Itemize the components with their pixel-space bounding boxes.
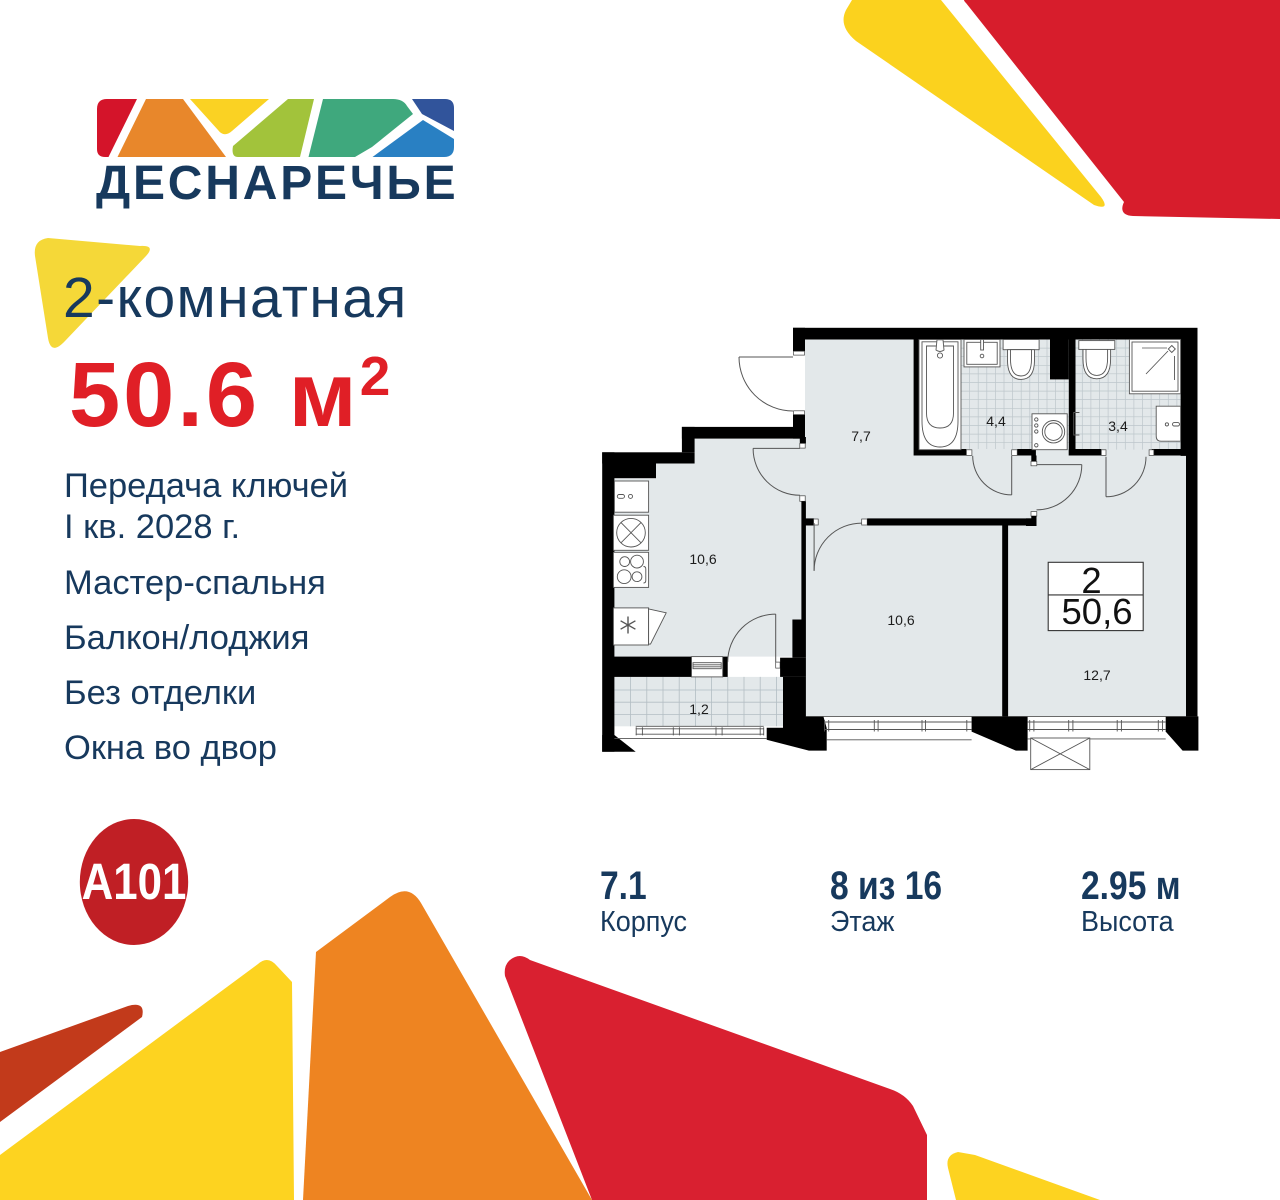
svg-text:3,4: 3,4 <box>1108 418 1128 434</box>
svg-text:4,4: 4,4 <box>986 413 1006 429</box>
svg-text:12,7: 12,7 <box>1083 667 1110 683</box>
svg-text:50,6: 50,6 <box>1061 591 1132 632</box>
svg-text:10,6: 10,6 <box>887 612 914 628</box>
svg-text:7,7: 7,7 <box>851 428 871 444</box>
svg-text:10,6: 10,6 <box>689 551 716 567</box>
svg-text:1,2: 1,2 <box>689 701 709 717</box>
